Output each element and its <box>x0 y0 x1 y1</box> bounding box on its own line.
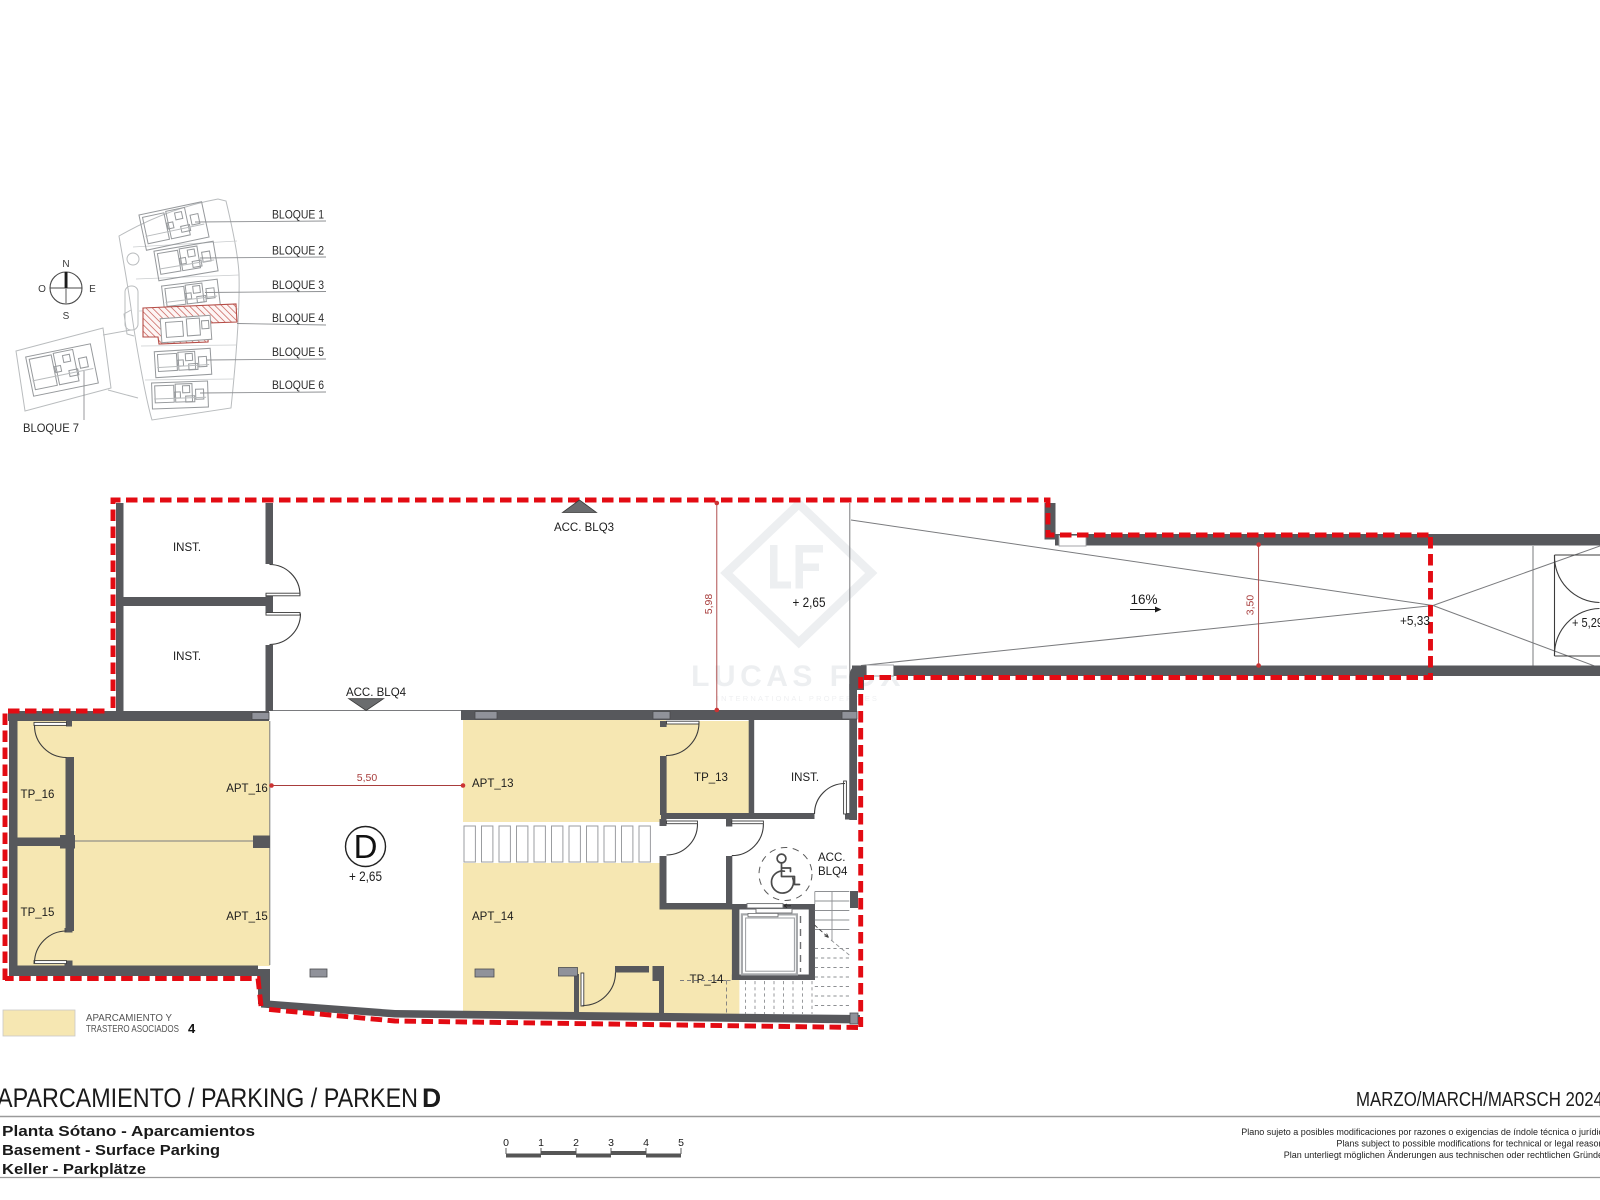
svg-text:5,50: 5,50 <box>357 772 378 784</box>
svg-text:Plano sujeto a posibles modifi: Plano sujeto a posibles modificaciones p… <box>1241 1127 1600 1137</box>
svg-text:TRASTERO ASOCIADOS: TRASTERO ASOCIADOS <box>86 1024 179 1035</box>
svg-text:S: S <box>63 311 70 322</box>
svg-text:1: 1 <box>538 1137 544 1149</box>
svg-text:+ 2,65: + 2,65 <box>793 595 826 610</box>
svg-text:O: O <box>38 284 46 295</box>
svg-text:ACC. BLQ4: ACC. BLQ4 <box>346 687 407 699</box>
svg-text:Planta Sótano - Aparcamientos: Planta Sótano - Aparcamientos <box>2 1124 255 1140</box>
svg-text:BLOQUE 2: BLOQUE 2 <box>272 244 324 258</box>
svg-text:APARCAMIENTO Y: APARCAMIENTO Y <box>86 1013 172 1024</box>
svg-text:BLOQUE 7: BLOQUE 7 <box>23 421 79 435</box>
svg-text:APT_15: APT_15 <box>226 911 268 923</box>
svg-text:D: D <box>422 1083 441 1113</box>
svg-text:+ 5,29: + 5,29 <box>1572 616 1600 630</box>
svg-text:INST.: INST. <box>173 542 201 554</box>
svg-text:TP_13: TP_13 <box>694 772 728 784</box>
svg-text:APT_14: APT_14 <box>472 911 514 923</box>
svg-text:INST.: INST. <box>791 772 819 784</box>
svg-text:+5,33: +5,33 <box>1400 614 1430 628</box>
svg-text:BLOQUE 4: BLOQUE 4 <box>272 311 324 325</box>
svg-text:Basement - Surface Parking: Basement - Surface Parking <box>2 1143 220 1159</box>
svg-text:TP_16: TP_16 <box>21 789 55 801</box>
svg-text:BLOQUE 5: BLOQUE 5 <box>272 345 324 359</box>
svg-text:INST.: INST. <box>173 651 201 663</box>
svg-text:ACC. BLQ3: ACC. BLQ3 <box>554 522 614 534</box>
svg-text:N: N <box>62 259 69 270</box>
svg-text:Keller - Parkplätze: Keller - Parkplätze <box>2 1162 146 1178</box>
svg-text:+ 2,65: + 2,65 <box>349 869 382 884</box>
svg-text:BLOQUE 6: BLOQUE 6 <box>272 378 324 392</box>
svg-text:APT_13: APT_13 <box>472 778 514 790</box>
svg-text:Plan unterliegt möglichen Ände: Plan unterliegt möglichen Änderungen aus… <box>1284 1150 1600 1160</box>
svg-text:ACC.: ACC. <box>818 852 845 864</box>
svg-text:4: 4 <box>188 1021 196 1036</box>
svg-text:MARZO/MARCH/MARSCH 2024: MARZO/MARCH/MARSCH 2024 <box>1356 1088 1600 1111</box>
svg-text:3,50: 3,50 <box>1245 595 1257 616</box>
svg-text:Plans subject to possible modi: Plans subject to possible modifications … <box>1336 1139 1600 1149</box>
svg-text:D: D <box>354 828 378 865</box>
svg-text:BLQ4: BLQ4 <box>818 866 848 878</box>
svg-text:4: 4 <box>643 1137 649 1149</box>
svg-text:5: 5 <box>678 1137 684 1149</box>
svg-text:3: 3 <box>608 1137 614 1149</box>
svg-text:TP_15: TP_15 <box>21 907 55 919</box>
svg-text:BLOQUE 1: BLOQUE 1 <box>272 208 324 222</box>
svg-text:TP_14: TP_14 <box>690 974 724 986</box>
svg-text:E: E <box>89 284 96 295</box>
svg-text:2: 2 <box>573 1137 579 1149</box>
svg-text:0: 0 <box>503 1137 509 1149</box>
svg-text:APT_16: APT_16 <box>226 783 268 795</box>
svg-text:BLOQUE 3: BLOQUE 3 <box>272 278 324 292</box>
svg-text:5,98: 5,98 <box>703 594 715 615</box>
svg-text:APARCAMIENTO / PARKING / PARKE: APARCAMIENTO / PARKING / PARKEN <box>0 1083 418 1113</box>
svg-text:16%: 16% <box>1130 592 1157 607</box>
